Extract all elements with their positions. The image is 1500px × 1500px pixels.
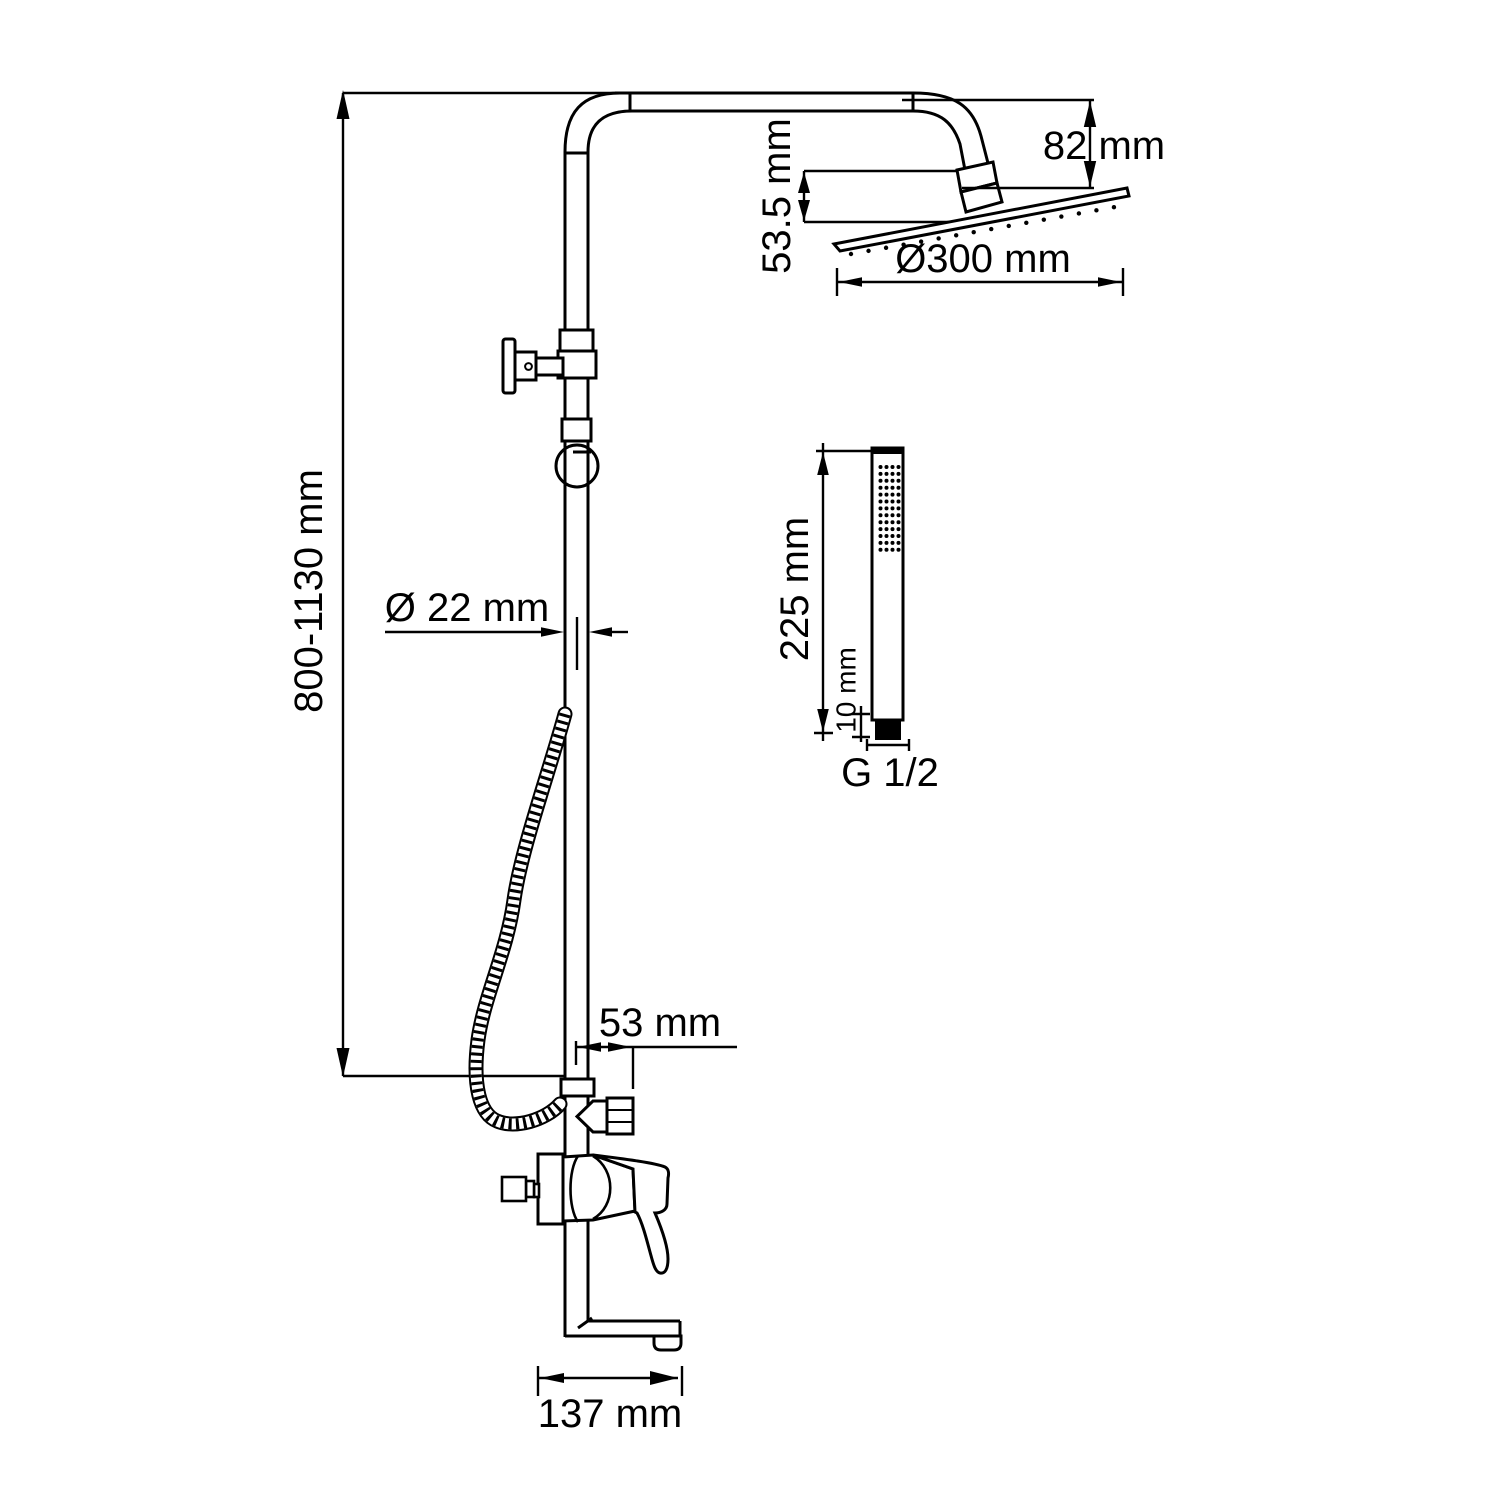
nozzle-dot: [849, 252, 853, 256]
nozzle-dot: [879, 548, 883, 552]
dim-spout-reach-label: 137 mm: [538, 1392, 683, 1436]
bend-outer: [565, 93, 620, 152]
nozzle-dot: [885, 465, 889, 469]
nozzle-dot: [879, 527, 883, 531]
dim-head-diameter-label: Ø300 mm: [895, 237, 1071, 281]
nozzle-dot: [885, 548, 889, 552]
nozzle-dot: [885, 506, 889, 510]
nozzle-dot: [885, 541, 889, 545]
slider-collar: [562, 419, 591, 441]
nozzle-dot: [891, 493, 895, 497]
mixer-top-adapter: [561, 1079, 594, 1096]
nozzle-dot: [1059, 214, 1063, 218]
nozzle-dot: [891, 534, 895, 538]
nozzle-dot: [891, 527, 895, 531]
nozzle-dot: [891, 472, 895, 476]
nozzle-dot: [885, 520, 889, 524]
nozzle-dot: [897, 541, 901, 545]
dim-handshower-thread-length-label: 10 mm: [831, 647, 862, 733]
nozzle-dot: [891, 520, 895, 524]
nozzle-dot: [989, 227, 993, 231]
nozzle-dot: [891, 465, 895, 469]
nozzle-dot: [866, 249, 870, 253]
nozzle-dot: [1007, 224, 1011, 228]
diverter-assembly: [503, 330, 598, 487]
nozzle-dot: [897, 534, 901, 538]
nozzle-dot: [885, 486, 889, 490]
dim-outlet-offset: 53 mm: [576, 1001, 737, 1089]
nozzle-dot: [1112, 205, 1116, 209]
arrow-up-icon: [337, 90, 350, 119]
dim-head-arm-drop-label: 82 mm: [1043, 124, 1165, 168]
head-bend-outer: [913, 93, 989, 167]
mixer-backplate: [538, 1154, 563, 1224]
dim-pipe-diameter-label: Ø 22 mm: [385, 586, 549, 630]
handshower-thread-connector: [875, 720, 901, 740]
spout-bracket: [565, 1318, 681, 1350]
shower-column-diagram: 800-1130 mm 82 mm 53.5 mm: [0, 0, 1500, 1500]
mixer-valve: [502, 1079, 669, 1273]
nozzle-dot: [879, 500, 883, 504]
screw-knob: [502, 1177, 526, 1201]
arrow-left-icon: [839, 277, 862, 286]
nozzle-dot: [885, 534, 889, 538]
thread-size-label: G 1/2: [841, 751, 939, 795]
diverter-knob-bar: [503, 339, 515, 393]
nozzle-dot: [879, 472, 883, 476]
arrow-right-icon: [541, 627, 564, 636]
nozzle-dot: [879, 520, 883, 524]
hand-shower: [872, 448, 903, 740]
spout-outlet-nub: [654, 1336, 681, 1350]
nozzle-dot: [879, 513, 883, 517]
nozzle-dot: [879, 506, 883, 510]
dim-outlet-offset-label: 53 mm: [599, 1001, 721, 1045]
dim-handshower-length-label: 225 mm: [773, 517, 817, 662]
nozzle-dot: [897, 506, 901, 510]
arrow-down-icon: [817, 709, 829, 732]
head-bend-inner: [913, 111, 965, 170]
dim-head-tilt-drop-label: 53.5 mm: [755, 118, 799, 274]
nozzle-dot: [879, 486, 883, 490]
nozzle-dot: [897, 520, 901, 524]
nozzle-dot: [879, 541, 883, 545]
technical-drawing-canvas: 800-1130 mm 82 mm 53.5 mm: [0, 0, 1500, 1500]
arrow-right-icon: [1098, 277, 1121, 286]
dim-head-arm-drop: 82 mm: [902, 100, 1165, 188]
dim-pipe-diameter: Ø 22 mm: [385, 586, 628, 670]
nozzle-dot: [891, 479, 895, 483]
nozzle-dot: [972, 230, 976, 234]
handshower-cap: [872, 448, 903, 454]
nozzle-dot: [891, 548, 895, 552]
arrow-up-icon: [817, 452, 829, 475]
nozzle-dot: [897, 527, 901, 531]
thread-callout: G 1/2: [841, 739, 939, 795]
dim-handshower-thread-length: 10 mm: [831, 647, 871, 742]
nozzle-dot: [891, 513, 895, 517]
nozzle-dot: [879, 465, 883, 469]
dim-overall-height-label: 800-1130 mm: [287, 469, 331, 713]
nozzle-dot: [879, 534, 883, 538]
nozzle-dot: [897, 500, 901, 504]
arrow-up-icon: [798, 172, 810, 193]
dim-overall-height: 800-1130 mm: [287, 90, 620, 1077]
dim-spout-reach: 137 mm: [538, 1366, 683, 1436]
nozzle-dot: [891, 541, 895, 545]
nozzle-dot: [897, 465, 901, 469]
nozzle-dot: [891, 500, 895, 504]
nozzle-dot: [1042, 217, 1046, 221]
hose-outlet: [577, 1101, 607, 1132]
nozzle-dot: [879, 479, 883, 483]
bend-inner: [588, 111, 632, 152]
nozzle-dot: [897, 486, 901, 490]
nozzle-dot: [885, 472, 889, 476]
nozzle-dot: [885, 493, 889, 497]
arrow-right-icon: [650, 1371, 678, 1385]
knob-pin: [525, 363, 532, 370]
nozzle-dot: [884, 246, 888, 250]
arrow-left-icon: [589, 627, 612, 636]
nozzle-dot: [897, 548, 901, 552]
nozzle-dot: [1077, 211, 1081, 215]
diverter-upper-block: [560, 330, 593, 351]
nozzle-dot: [885, 500, 889, 504]
nozzle-dot: [897, 472, 901, 476]
nozzle-dot: [879, 493, 883, 497]
dim-head-diameter: Ø300 mm: [837, 237, 1123, 296]
nozzle-dot: [885, 527, 889, 531]
shower-hose: [476, 714, 565, 1124]
arrow-down-icon: [798, 200, 810, 221]
hose-core: [476, 714, 565, 1124]
nozzle-dot: [897, 513, 901, 517]
nozzle-dot: [1024, 221, 1028, 225]
nozzle-dot: [1094, 208, 1098, 212]
arrow-left-icon: [540, 1373, 564, 1383]
arrow-down-icon: [337, 1048, 350, 1077]
nozzle-dot: [891, 506, 895, 510]
nozzle-dot: [885, 479, 889, 483]
hose-outlet-nut: [607, 1098, 633, 1134]
nozzle-dot: [891, 486, 895, 490]
diverter-stem: [536, 358, 563, 375]
nozzle-dot: [897, 493, 901, 497]
nozzle-dot: [897, 479, 901, 483]
nozzle-dot: [885, 513, 889, 517]
